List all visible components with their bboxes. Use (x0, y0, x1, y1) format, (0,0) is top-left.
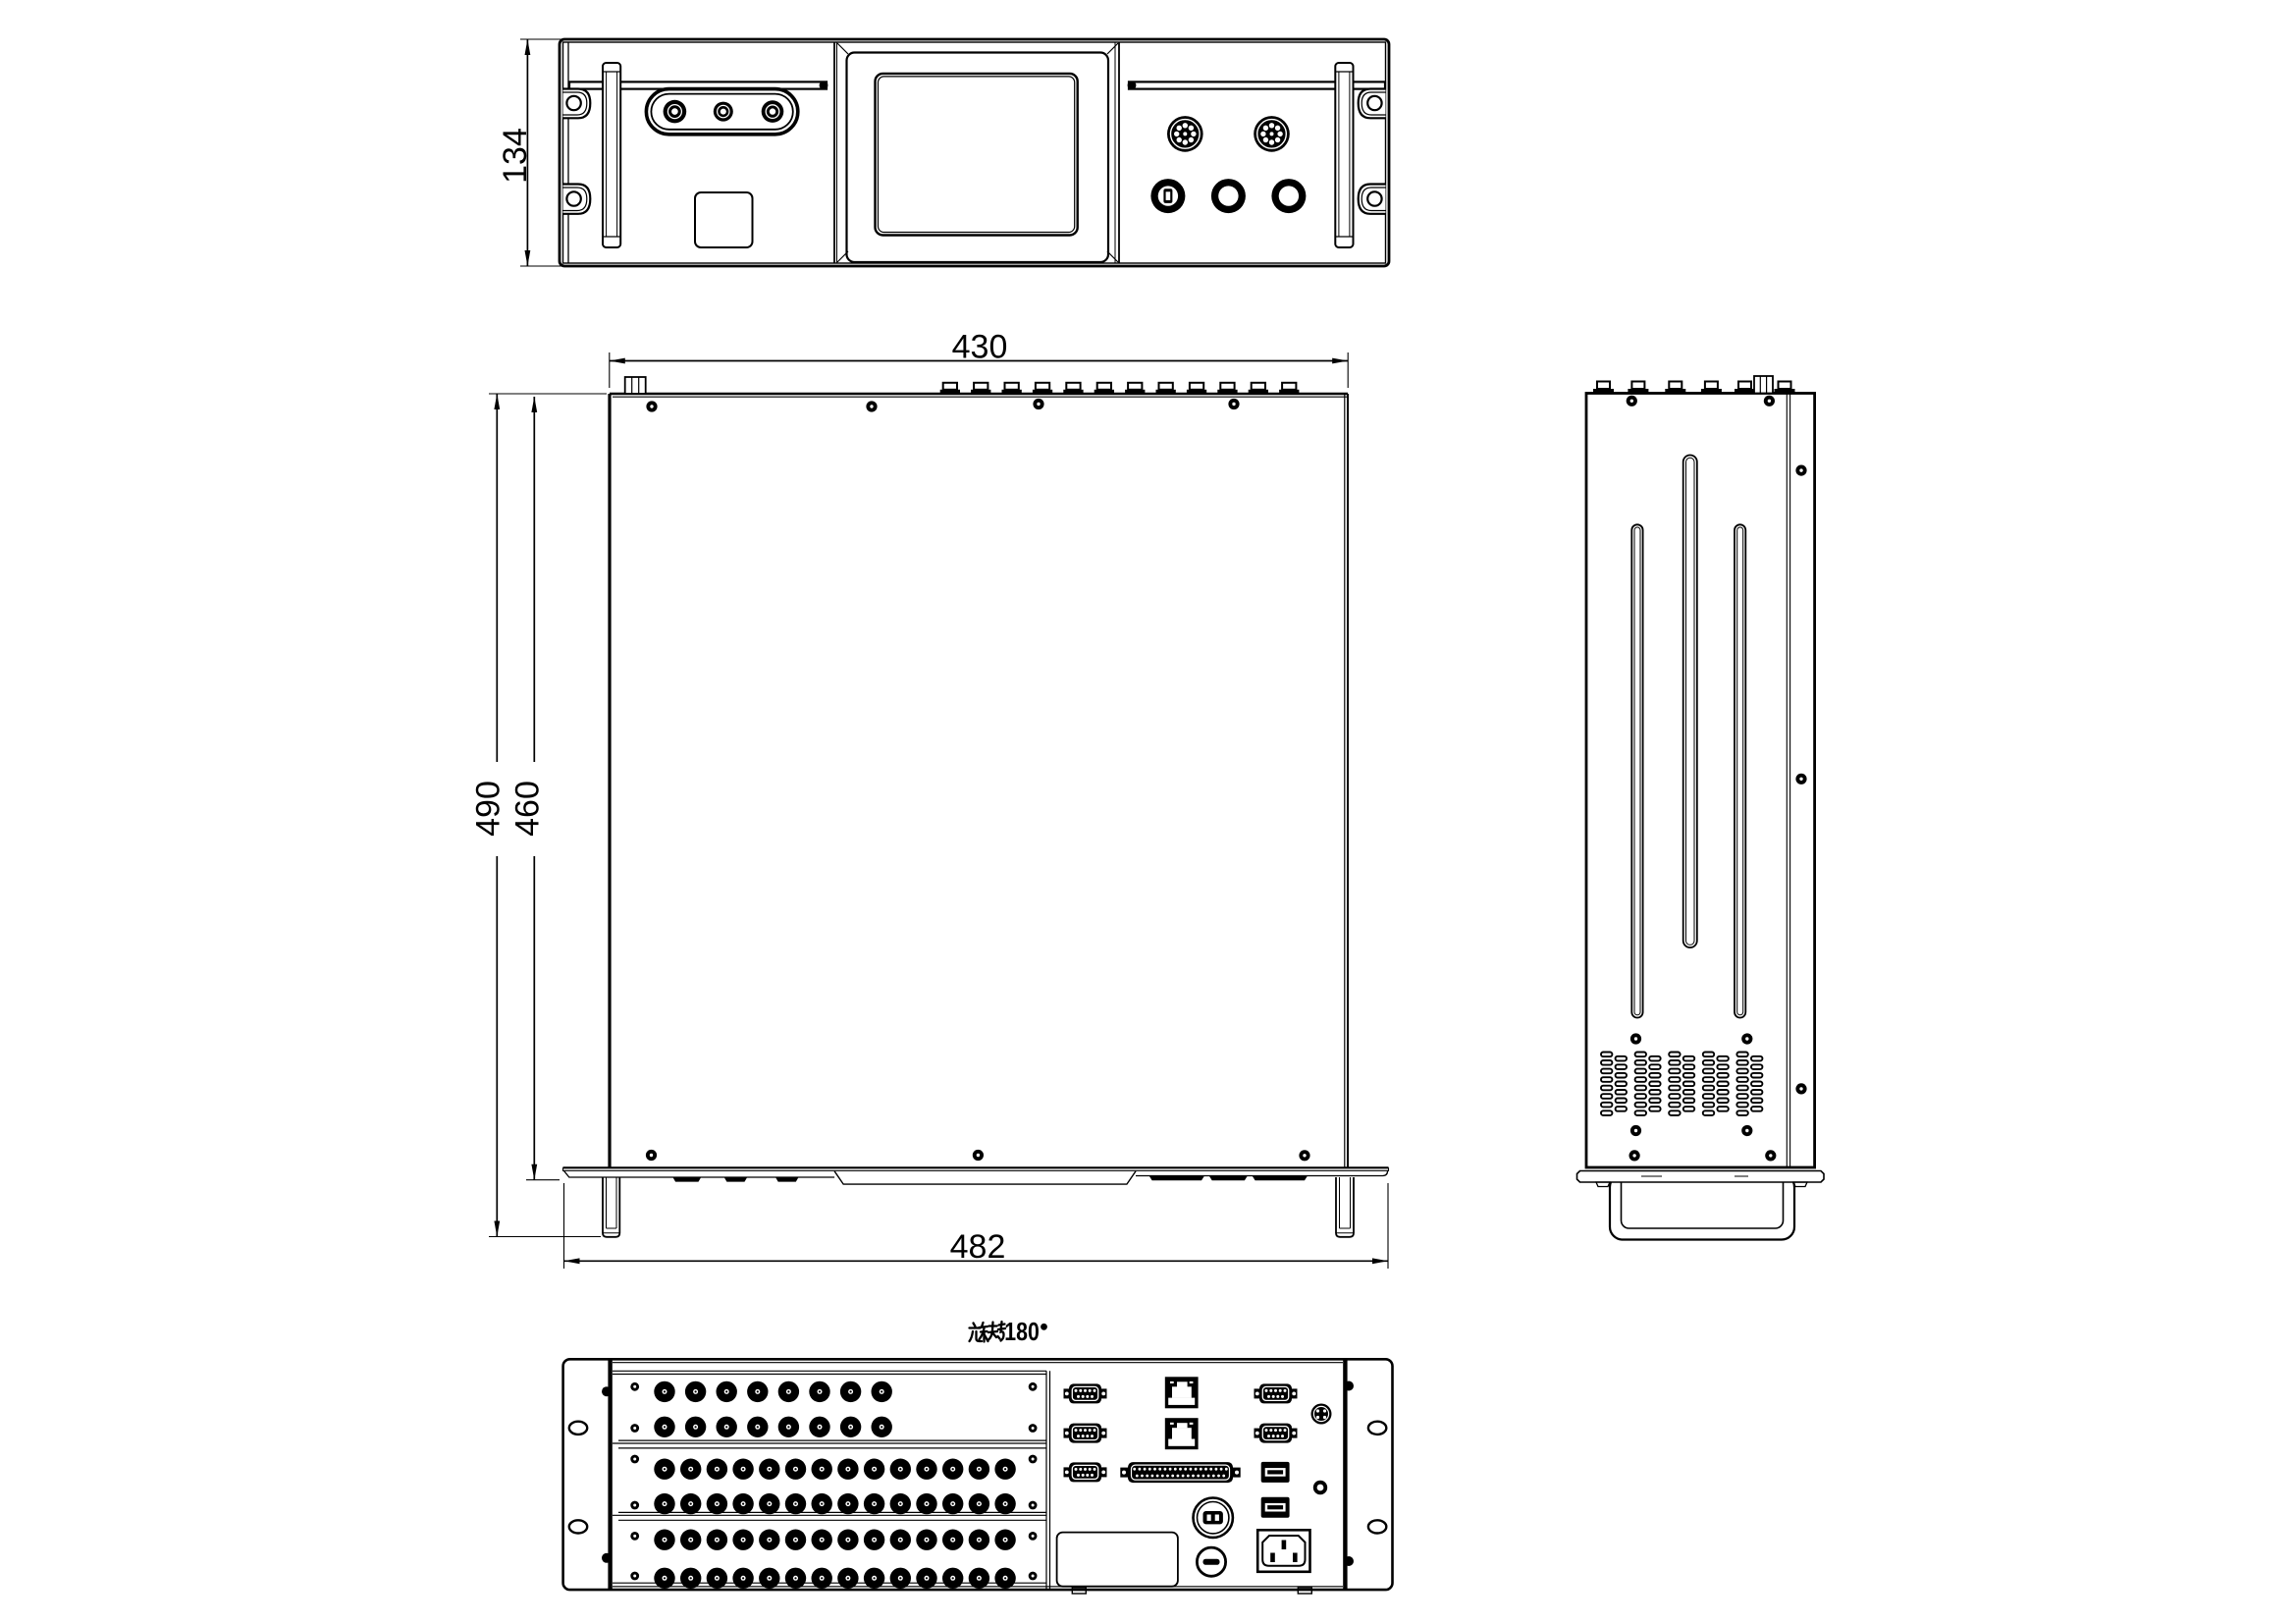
svg-text:430: 430 (952, 329, 1008, 366)
svg-text:460: 460 (509, 781, 547, 837)
svg-text:490: 490 (470, 781, 507, 837)
svg-text:134: 134 (497, 128, 534, 184)
svg-text:180: 180 (1004, 1319, 1040, 1346)
svg-text:482: 482 (950, 1228, 1006, 1266)
